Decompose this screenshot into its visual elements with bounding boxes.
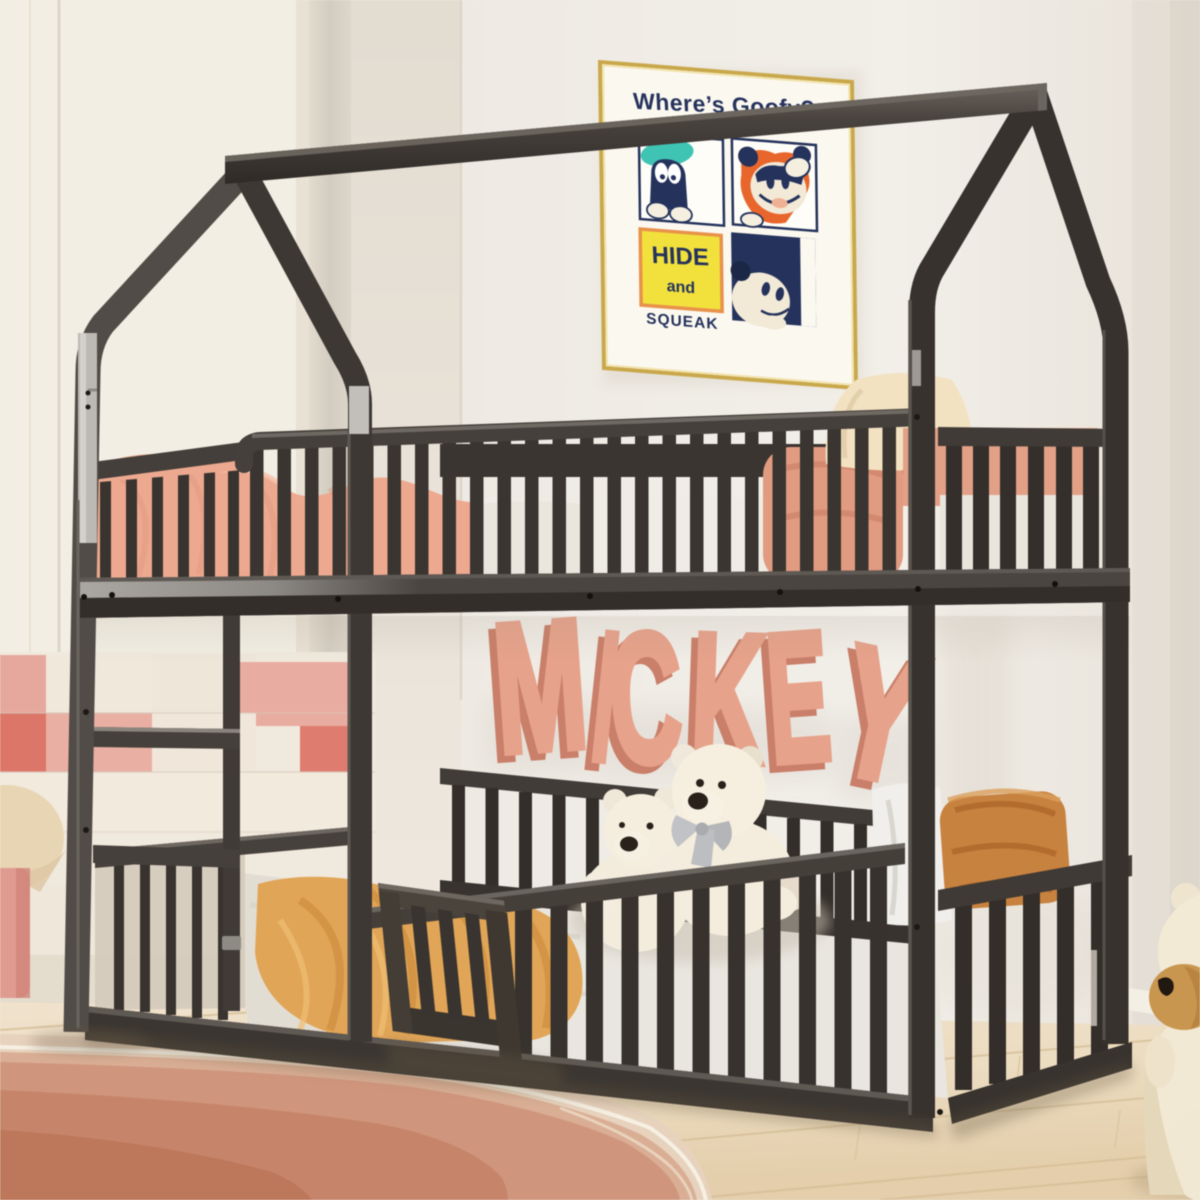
svg-text:HIDE: HIDE: [651, 242, 710, 272]
svg-text:M: M: [487, 581, 593, 793]
svg-text:and: and: [667, 277, 696, 297]
